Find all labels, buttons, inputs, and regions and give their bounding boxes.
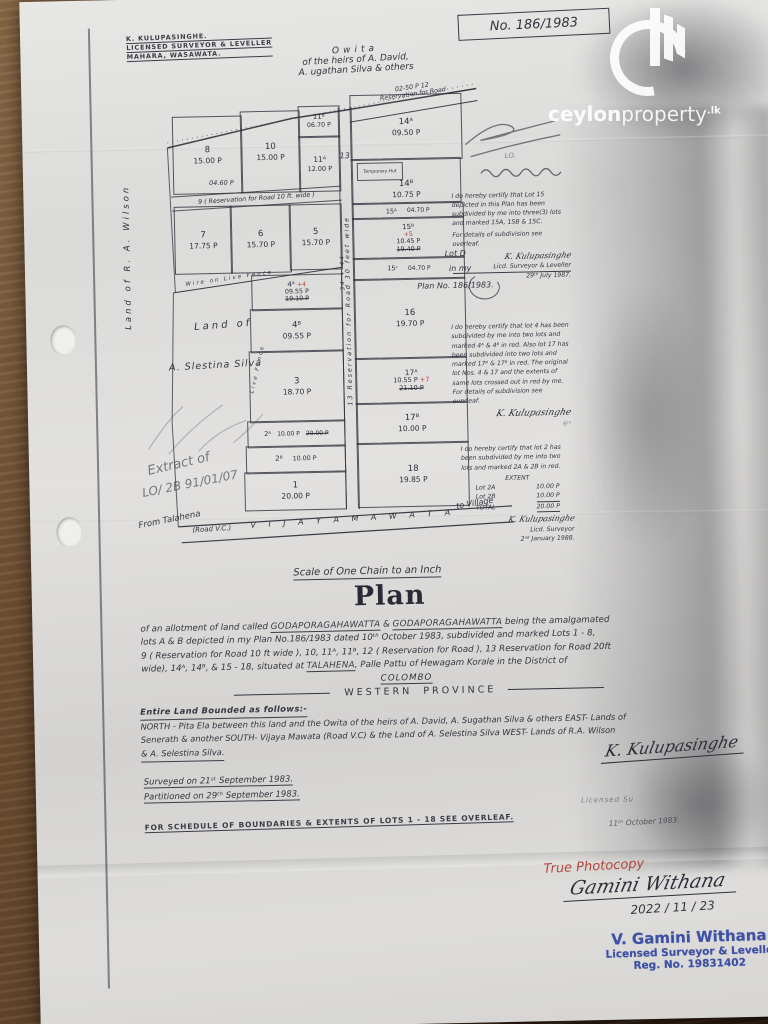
plan-title: Plan [353,580,425,612]
scale-line: Scale of One Chain to an Inch [293,564,441,580]
lot-5: 515.70 P [289,203,343,270]
watermark: ceylonproperty.lk [548,6,763,146]
footer-date: 2022 / 11 / 23 [630,898,715,917]
lot-d-note: Lot D in my Plan No. 186/1983. [445,248,494,290]
signature-role: Licensed Su [581,795,634,804]
cert3-signature: K. Kulupasinghe [506,513,576,526]
lot-17B: 17ᴮ10.00 P [356,401,469,445]
schedule-line: FOR SCHEDULE OF BOUNDARIES & EXTENTS OF … [144,812,514,833]
lot-4B: 4ᴮ09.55 P [250,307,344,353]
lot-11A: 11ᴬ12.00 P [298,135,341,192]
surveyor-stamp: V. Gamini Withana Licensed Surveyor & Le… [579,925,768,974]
lot-7: 717.75 P [174,206,233,275]
plan-description: of an allotment of land called GODAPORAG… [140,613,671,692]
lot-6: 615.70 P [230,204,292,273]
sinhala-scribble [478,163,573,179]
road-13-number: 13 [339,151,349,160]
lot-17A: 17ᴬ 10.55 P +7 21.10 P [355,356,468,405]
partitioned-line: Partitioned on 29ᵗʰ September 1983. [144,789,300,803]
west-neighbour-top: Land of R. A. Wilson [119,160,137,330]
lot-3: 318.70 P [249,349,345,423]
surveyed-line: Surveyed on 21ˢᵗ September 1983. [144,775,294,789]
lot-14A: 14ᴬ09.50 P [349,93,462,161]
lot-1: 120.00 P [244,470,347,511]
lot-4A: 4ᴬ +4 09.55 P 19.10 P [251,273,343,311]
lo-note: LO. [505,152,516,160]
signature-date: 11ᵗʰ October 1983. [608,815,679,828]
cert1-signature: K. Kulupasinghe [503,249,573,262]
road9-extent: 04.60 P [209,179,234,188]
punch-hole [56,517,83,548]
plan-sheet: K. KULUPASINGHE. LICENSED SURVEYOR & LEV… [19,0,768,1024]
lot-18: 1819.85 P [357,441,470,508]
watermark-text: ceylonproperty.lk [548,102,721,126]
stain-middle [580,278,716,561]
certification-3: I do hereby certify that lot 2 has been … [461,443,575,546]
province-dash [234,693,330,696]
punch-hole [50,325,77,356]
province-dash [507,687,603,690]
photo-of-survey-plan: K. KULUPASINGHE. LICENSED SURVEYOR & LEV… [0,0,768,1024]
sheet-border-line [88,29,110,989]
certification-2: I do hereby certify that lot 4 has been … [451,321,571,432]
lot-11B: 11ᴮ06.70 P [298,105,341,138]
lot-10: 1015.00 P [240,110,302,193]
ceylonproperty-logo-icon [610,8,694,92]
temporary-hut: Temporary Hut [357,162,403,181]
